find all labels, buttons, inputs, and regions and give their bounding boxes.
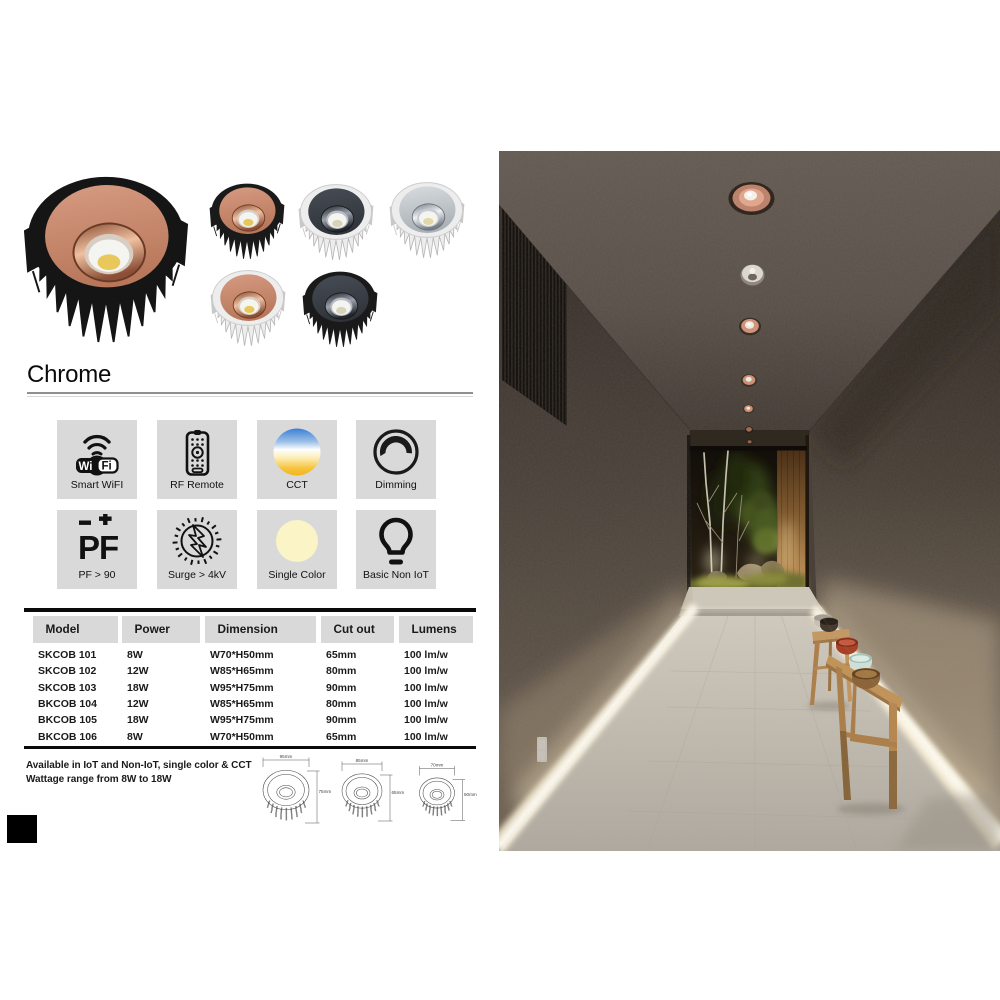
svg-text:70mm: 70mm <box>431 763 444 768</box>
svg-text:75mm: 75mm <box>319 789 332 794</box>
svg-text:95mm: 95mm <box>280 754 293 759</box>
svg-text:Fi: Fi <box>102 461 112 473</box>
svg-text:50mm: 50mm <box>464 792 477 797</box>
svg-text:PF: PF <box>78 529 118 566</box>
svg-text:Wi: Wi <box>79 461 93 473</box>
svg-text:65mm: 65mm <box>392 790 405 795</box>
svg-text:85mm: 85mm <box>356 758 369 763</box>
